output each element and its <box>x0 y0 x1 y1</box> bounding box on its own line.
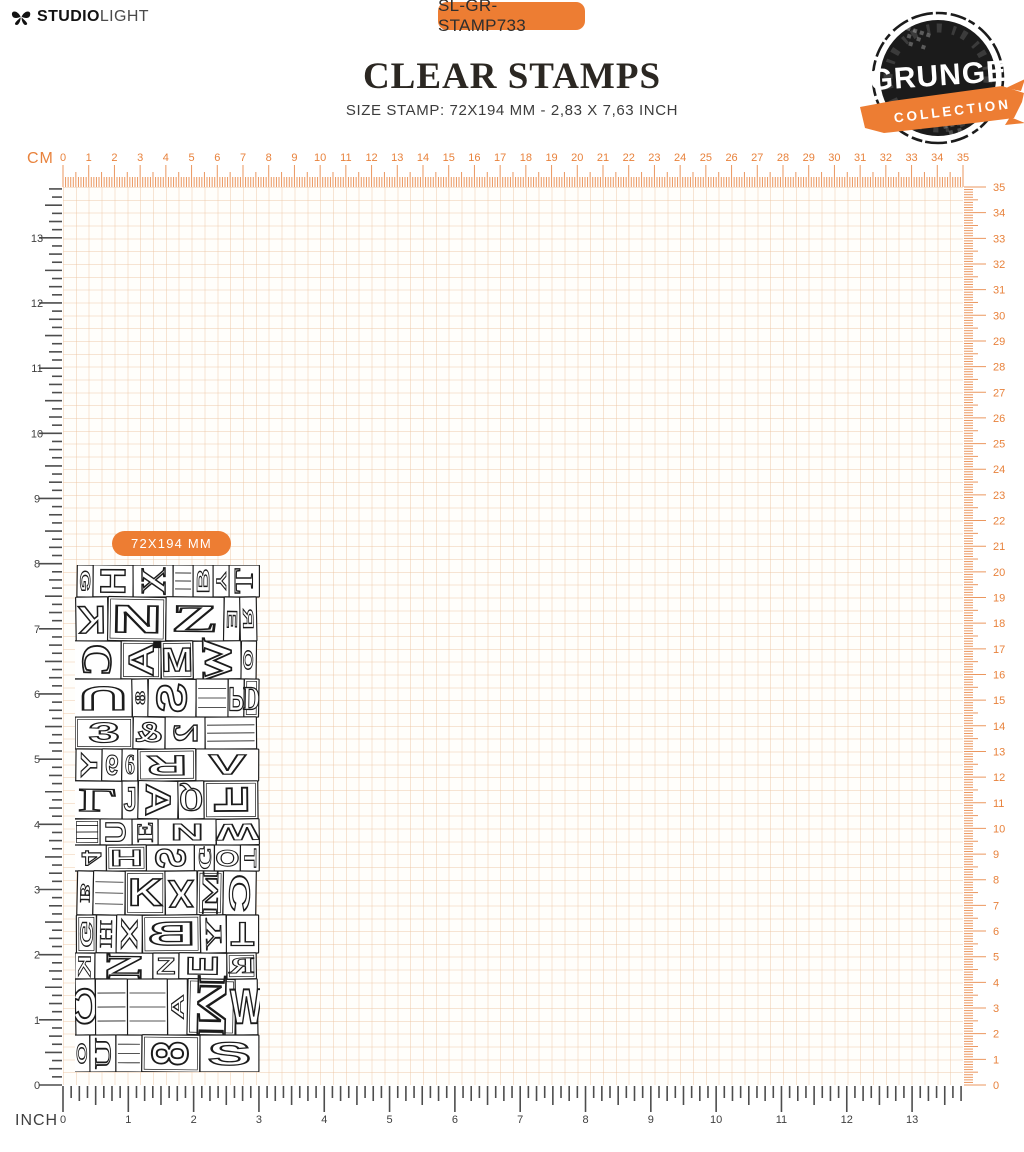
svg-text:H: H <box>96 920 116 948</box>
svg-text:11: 11 <box>31 363 42 375</box>
svg-text:20: 20 <box>993 567 1005 579</box>
svg-text:14: 14 <box>417 152 429 164</box>
svg-text:0: 0 <box>34 1080 40 1092</box>
svg-text:K: K <box>128 872 162 915</box>
svg-text:3: 3 <box>137 152 143 164</box>
svg-text:34: 34 <box>993 208 1005 220</box>
svg-text:S: S <box>208 1035 251 1072</box>
svg-text:35: 35 <box>993 182 1005 194</box>
svg-text:4: 4 <box>321 1114 327 1126</box>
svg-text:B: B <box>147 915 196 953</box>
svg-text:10: 10 <box>710 1114 722 1126</box>
svg-text:M: M <box>197 871 223 915</box>
svg-text:16: 16 <box>468 152 480 164</box>
svg-text:13: 13 <box>906 1114 918 1126</box>
svg-text:2: 2 <box>111 152 117 164</box>
svg-text:35: 35 <box>957 152 969 164</box>
svg-text:A: A <box>121 643 161 676</box>
svg-text:9: 9 <box>105 749 119 782</box>
svg-text:K: K <box>78 597 106 641</box>
product-sheet: STUDIOLIGHT SL-GR-STAMP733 CLEAR STAMPS … <box>0 0 1024 1152</box>
svg-text:11: 11 <box>776 1114 787 1126</box>
svg-text:6: 6 <box>125 749 135 780</box>
svg-text:6: 6 <box>214 152 220 164</box>
svg-text:8: 8 <box>142 1041 199 1066</box>
svg-text:22: 22 <box>993 516 1005 528</box>
svg-text:20: 20 <box>571 152 583 164</box>
svg-text:26: 26 <box>993 413 1005 425</box>
svg-text:17: 17 <box>993 644 1005 656</box>
svg-text:2: 2 <box>993 1029 999 1041</box>
svg-text:X: X <box>116 919 143 950</box>
svg-text:10: 10 <box>31 428 43 440</box>
svg-text:8: 8 <box>266 152 272 164</box>
svg-text:31: 31 <box>854 152 866 164</box>
svg-text:23: 23 <box>993 490 1005 502</box>
svg-text:9: 9 <box>648 1114 654 1126</box>
svg-text:10: 10 <box>993 823 1005 835</box>
svg-text:5: 5 <box>34 754 40 766</box>
svg-text:33: 33 <box>905 152 917 164</box>
svg-text:F: F <box>204 786 257 814</box>
svg-text:L: L <box>79 781 117 819</box>
svg-text:7: 7 <box>34 624 40 636</box>
svg-text:2: 2 <box>165 723 204 742</box>
svg-text:A: A <box>138 783 179 817</box>
svg-text:30: 30 <box>993 310 1005 322</box>
svg-text:9: 9 <box>34 493 40 505</box>
svg-text:0: 0 <box>60 152 66 164</box>
svg-text:T: T <box>231 915 254 953</box>
svg-text:5: 5 <box>387 1114 393 1126</box>
svg-text:T: T <box>240 848 259 867</box>
svg-text:U: U <box>90 1038 115 1070</box>
svg-text:25: 25 <box>700 152 712 164</box>
svg-text:E: E <box>179 955 226 976</box>
svg-text:23: 23 <box>648 152 660 164</box>
svg-text:27: 27 <box>751 152 763 164</box>
svg-text:X: X <box>133 567 172 595</box>
svg-text:3: 3 <box>256 1114 262 1126</box>
svg-text:S: S <box>147 848 194 869</box>
svg-text:Y: Y <box>213 572 229 591</box>
svg-text:7: 7 <box>517 1114 523 1126</box>
svg-text:16: 16 <box>993 669 1005 681</box>
svg-text:W: W <box>216 819 260 846</box>
svg-text:14: 14 <box>993 721 1005 733</box>
svg-text:24: 24 <box>993 464 1005 476</box>
svg-text:D: D <box>243 679 260 716</box>
svg-text:2: 2 <box>34 950 40 962</box>
stamp-size-badge: 72X194 MM <box>112 531 231 556</box>
svg-text:27: 27 <box>993 387 1005 399</box>
svg-text:O: O <box>75 1042 90 1064</box>
svg-text:4: 4 <box>75 850 105 866</box>
svg-text:C: C <box>75 643 120 676</box>
svg-text:R: R <box>228 953 254 978</box>
svg-text:31: 31 <box>993 285 1005 297</box>
svg-text:M: M <box>187 975 235 1039</box>
svg-text:9: 9 <box>993 849 999 861</box>
svg-text:12: 12 <box>993 772 1005 784</box>
svg-text:8: 8 <box>582 1114 588 1126</box>
svg-text:G: G <box>77 920 97 947</box>
svg-text:M: M <box>161 641 193 679</box>
svg-text:9: 9 <box>291 152 297 164</box>
svg-text:24: 24 <box>674 152 686 164</box>
svg-text:10: 10 <box>314 152 326 164</box>
svg-text:1: 1 <box>86 152 92 164</box>
svg-text:E: E <box>132 821 157 842</box>
svg-text:X: X <box>168 871 194 915</box>
svg-text:13: 13 <box>993 746 1005 758</box>
svg-text:11: 11 <box>993 798 1004 810</box>
svg-text:O: O <box>215 845 239 871</box>
svg-text:H: H <box>110 845 143 871</box>
svg-text:12: 12 <box>365 152 377 164</box>
svg-text:7: 7 <box>240 152 246 164</box>
svg-text:11: 11 <box>340 152 351 164</box>
svg-text:8: 8 <box>993 875 999 887</box>
svg-text:21: 21 <box>597 152 609 164</box>
svg-text:J: J <box>123 781 136 818</box>
svg-text:U: U <box>100 821 131 843</box>
svg-text:Q: Q <box>179 781 204 819</box>
svg-text:22: 22 <box>623 152 635 164</box>
svg-text:28: 28 <box>777 152 789 164</box>
svg-text:G: G <box>195 846 214 870</box>
svg-text:12: 12 <box>841 1114 853 1126</box>
svg-text:Y: Y <box>200 917 226 950</box>
svg-text:5: 5 <box>189 152 195 164</box>
svg-text:T: T <box>230 568 259 593</box>
svg-text:13: 13 <box>391 152 403 164</box>
svg-text:U: U <box>79 679 127 716</box>
svg-text:3: 3 <box>34 884 40 896</box>
svg-text:C: C <box>223 874 256 912</box>
svg-text:13: 13 <box>31 233 43 245</box>
svg-text:1: 1 <box>125 1114 131 1126</box>
svg-text:18: 18 <box>993 618 1005 630</box>
svg-text:S: S <box>148 683 196 714</box>
svg-text:8: 8 <box>34 559 40 571</box>
svg-text:2: 2 <box>191 1114 197 1126</box>
stamp-artwork: GHXBYTKNZERCAMWOU8SPD3&2Y96RVLJAQFUENW4H… <box>75 565 260 1072</box>
svg-text:15: 15 <box>443 152 455 164</box>
svg-text:3: 3 <box>993 1003 999 1015</box>
svg-text:E: E <box>224 609 240 628</box>
svg-text:N: N <box>171 819 204 845</box>
svg-text:33: 33 <box>993 233 1005 245</box>
svg-text:R: R <box>146 749 187 781</box>
svg-text:32: 32 <box>880 152 892 164</box>
svg-text:29: 29 <box>993 336 1005 348</box>
svg-text:29: 29 <box>803 152 815 164</box>
svg-text:4: 4 <box>993 977 999 989</box>
svg-text:Z: Z <box>156 953 175 979</box>
svg-text:6: 6 <box>34 689 40 701</box>
svg-text:4: 4 <box>34 819 40 831</box>
svg-text:Z: Z <box>172 597 219 640</box>
svg-text:26: 26 <box>725 152 737 164</box>
svg-text:A: A <box>168 994 188 1020</box>
svg-text:G: G <box>77 570 93 592</box>
svg-text:7: 7 <box>993 900 999 912</box>
svg-text:8: 8 <box>132 691 148 705</box>
svg-text:34: 34 <box>931 152 943 164</box>
svg-text:H: H <box>93 567 132 595</box>
svg-text:15: 15 <box>993 695 1005 707</box>
svg-text:4: 4 <box>163 152 169 164</box>
svg-text:W: W <box>230 979 260 1035</box>
svg-text:1: 1 <box>34 1015 40 1027</box>
svg-text:0: 0 <box>993 1080 999 1092</box>
svg-text:O: O <box>241 650 256 671</box>
svg-text:B: B <box>193 568 213 593</box>
svg-text:32: 32 <box>993 259 1005 271</box>
svg-text:30: 30 <box>828 152 840 164</box>
svg-text:5: 5 <box>993 952 999 964</box>
svg-text:N: N <box>95 953 152 979</box>
svg-text:V: V <box>208 749 246 780</box>
svg-text:K: K <box>75 955 95 978</box>
svg-text:R: R <box>240 608 257 630</box>
svg-text:Y: Y <box>76 752 102 778</box>
svg-text:N: N <box>112 597 163 641</box>
svg-text:18: 18 <box>520 152 532 164</box>
svg-text:W: W <box>194 637 241 683</box>
svg-text:28: 28 <box>993 362 1005 374</box>
svg-text:&: & <box>135 717 163 748</box>
svg-text:P: P <box>228 679 244 716</box>
svg-text:25: 25 <box>993 439 1005 451</box>
svg-text:19: 19 <box>993 593 1005 605</box>
svg-text:17: 17 <box>494 152 506 164</box>
svg-text:21: 21 <box>993 541 1005 553</box>
svg-text:3: 3 <box>88 717 119 748</box>
svg-text:0: 0 <box>60 1114 66 1126</box>
svg-text:6: 6 <box>452 1114 458 1126</box>
svg-text:1: 1 <box>993 1054 999 1066</box>
svg-text:12: 12 <box>31 298 43 310</box>
svg-text:19: 19 <box>545 152 557 164</box>
svg-text:6: 6 <box>993 926 999 938</box>
svg-text:B: B <box>77 883 93 902</box>
